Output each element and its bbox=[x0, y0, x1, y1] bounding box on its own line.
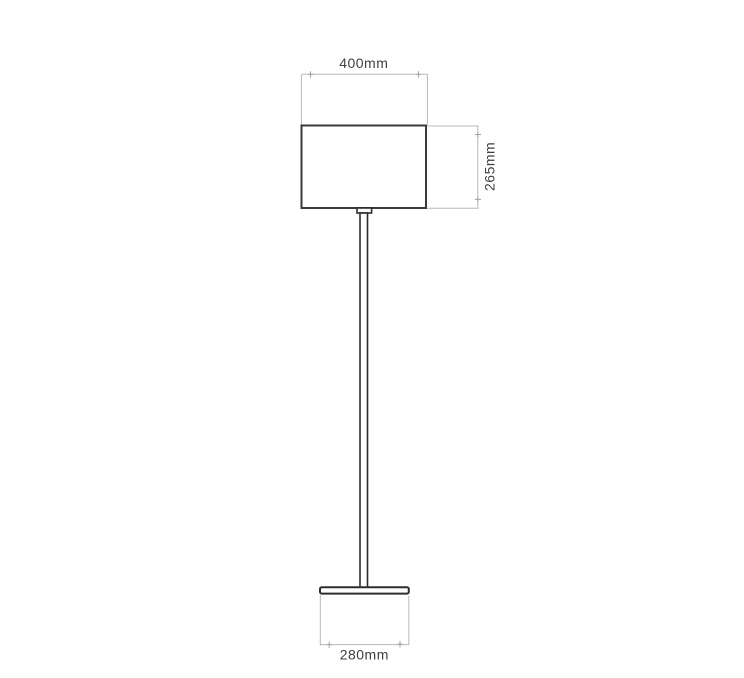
svg-text:400mm: 400mm bbox=[339, 55, 388, 71]
svg-text:265mm: 265mm bbox=[481, 142, 497, 191]
svg-text:280mm: 280mm bbox=[340, 647, 389, 663]
